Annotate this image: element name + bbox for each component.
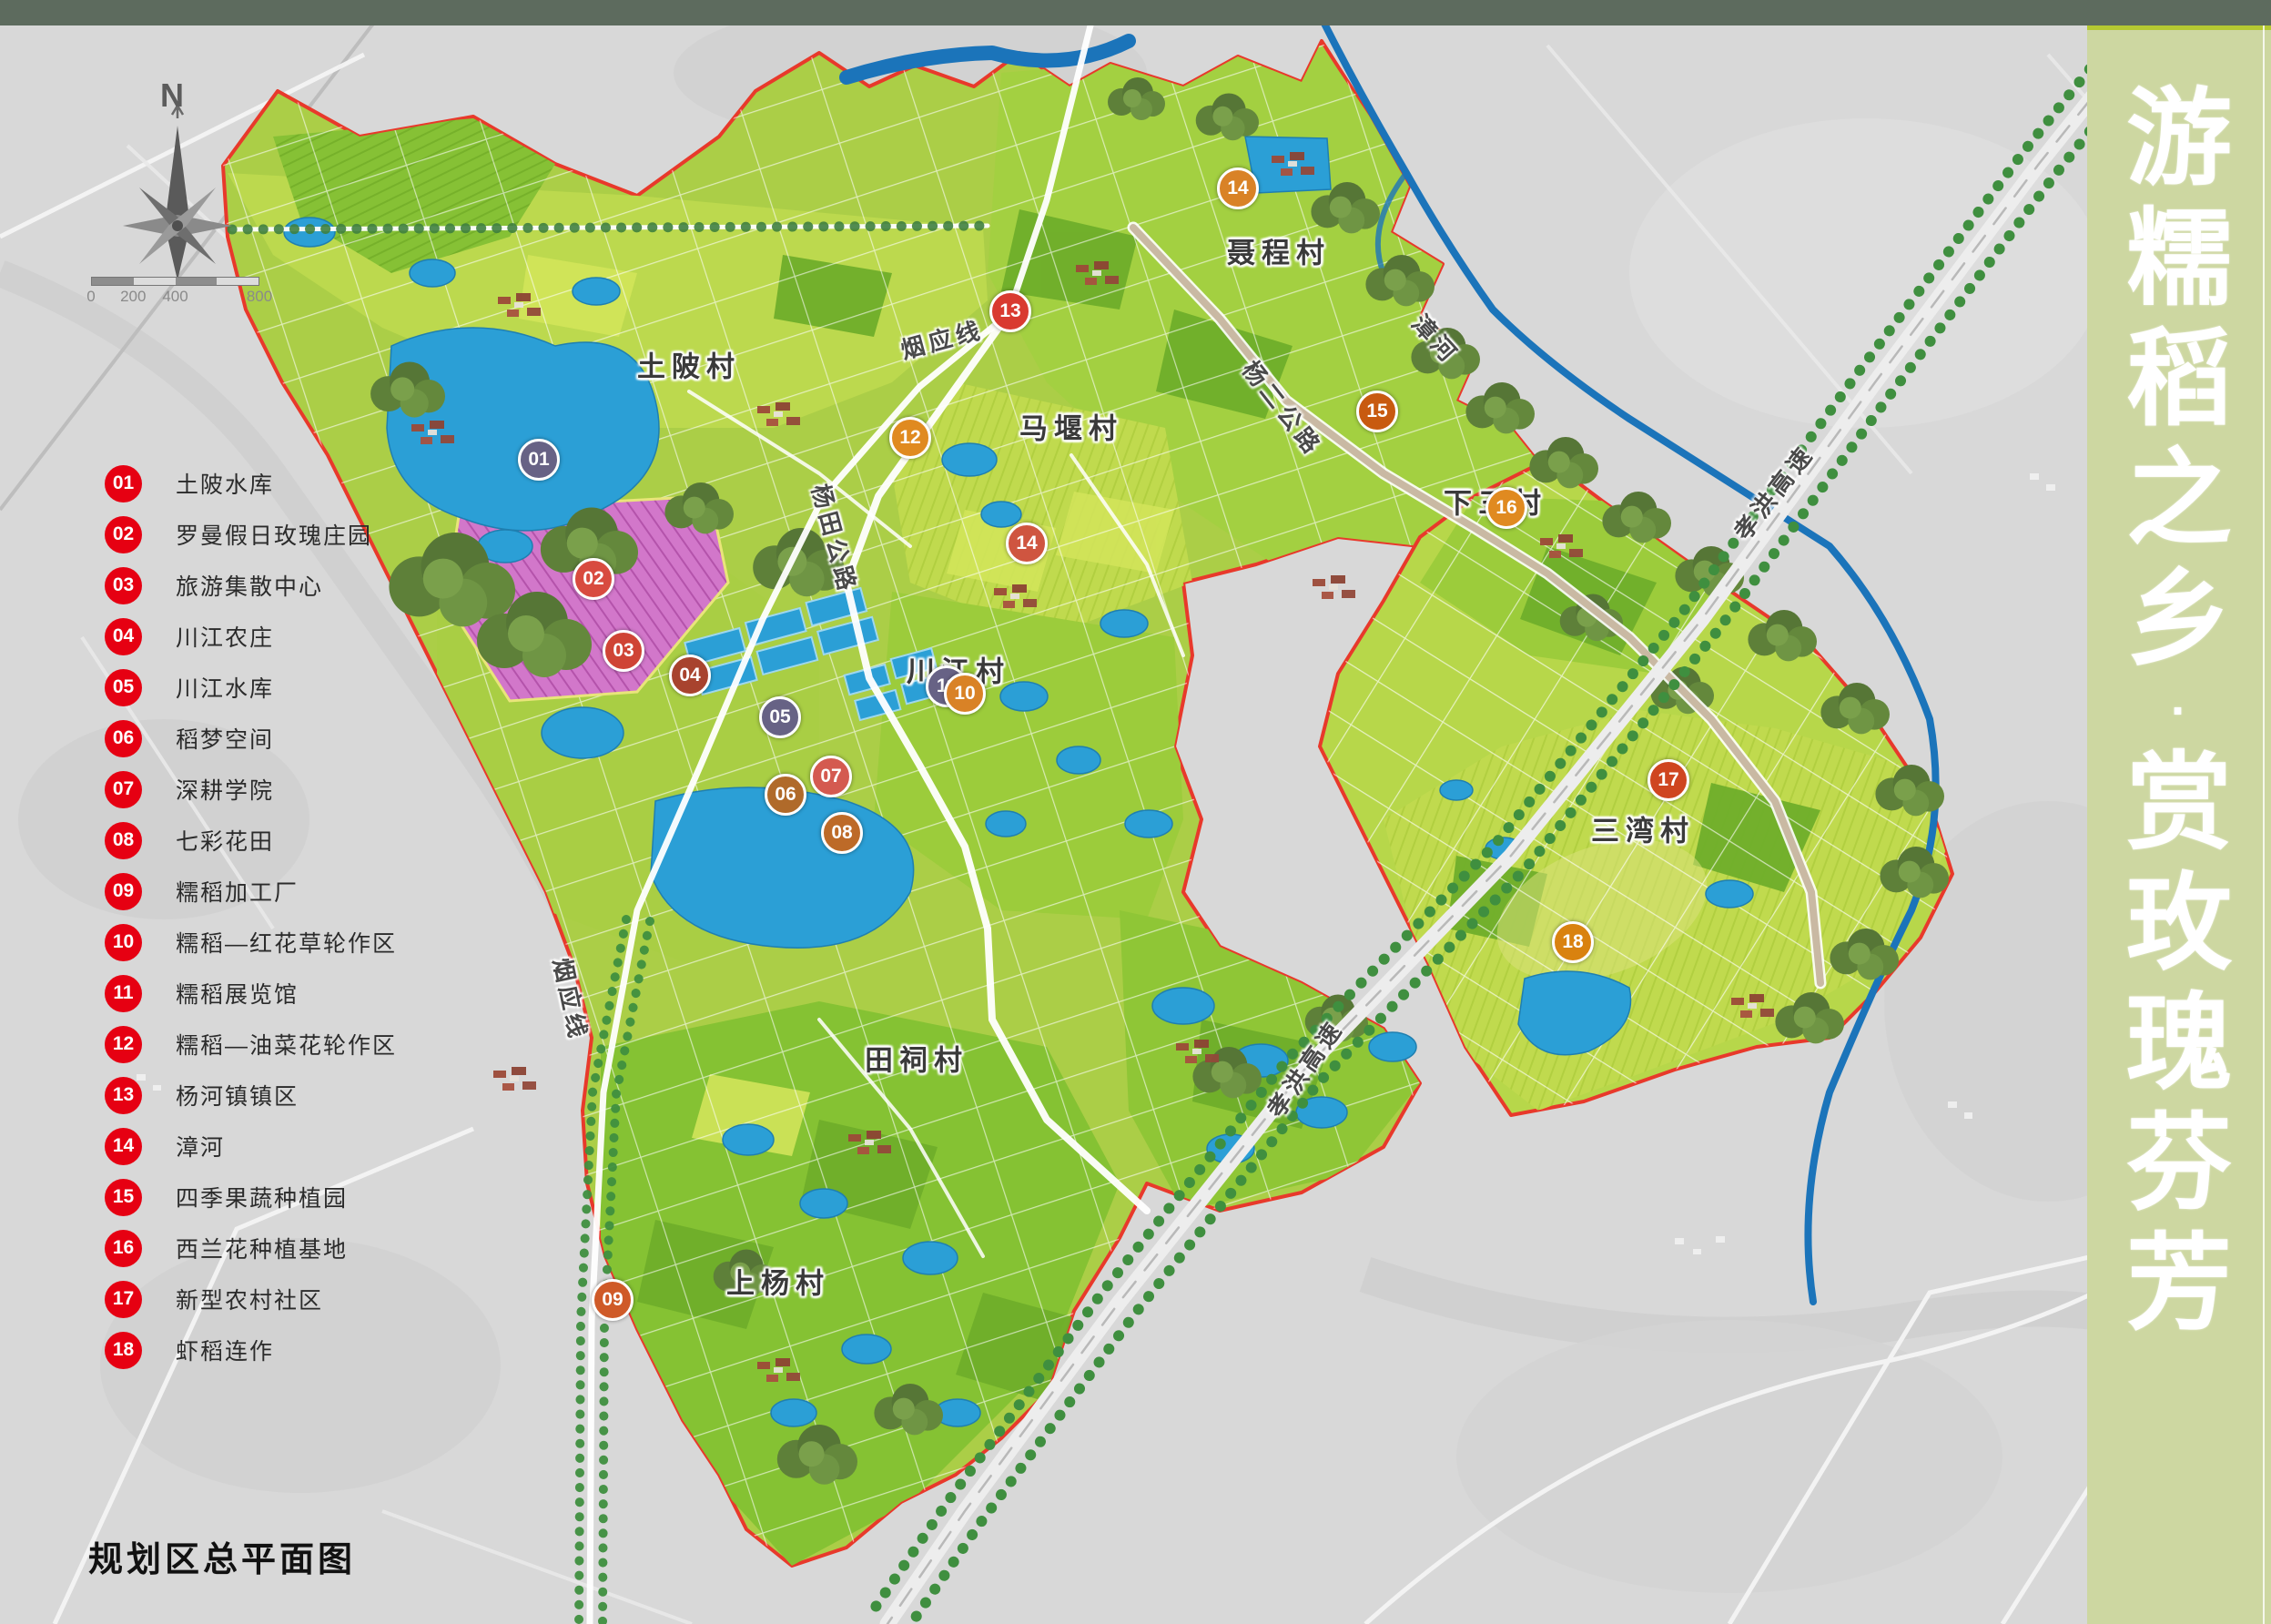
legend-item: 04川江农庄 [105, 611, 397, 662]
vertical-title: 游糯稻之乡·赏玫瑰芬芳 [2087, 78, 2271, 1344]
legend-number-badge: 08 [105, 822, 142, 859]
scale-segment [92, 278, 134, 285]
legend-label: 川江水库 [176, 671, 274, 704]
vertical-title-char: 瑰 [2126, 983, 2232, 1103]
legend-number-badge: 01 [105, 465, 142, 502]
legend-item: 05川江水库 [105, 662, 397, 713]
legend-number-badge: 13 [105, 1077, 142, 1114]
legend-number-badge: 03 [105, 567, 142, 604]
scale-bar: 0200400800 [91, 277, 259, 306]
legend-label: 四季果蔬种植园 [176, 1181, 348, 1213]
vertical-title-char: 芬 [2126, 1103, 2232, 1223]
scale-segment [217, 278, 259, 285]
legend-label: 稻梦空间 [176, 722, 274, 755]
legend-label: 糯稻加工厂 [176, 875, 299, 908]
vertical-title-char: 之 [2126, 439, 2232, 559]
top-bar [0, 0, 2271, 25]
legend-number-badge: 09 [105, 873, 142, 910]
sidebar-edge-line [2263, 25, 2265, 1624]
legend-number-badge: 16 [105, 1230, 142, 1267]
legend-label: 杨河镇镇区 [176, 1079, 299, 1111]
legend-label: 糯稻展览馆 [176, 977, 299, 1010]
legend: 01土陂水库02罗曼假日玫瑰庄园03旅游集散中心04川江农庄05川江水库06稻梦… [105, 458, 397, 1375]
legend-item: 01土陂水库 [105, 458, 397, 509]
legend-item: 16西兰花种植基地 [105, 1223, 397, 1274]
legend-item: 18虾稻连作 [105, 1325, 397, 1375]
vertical-title-char: 稻 [2126, 319, 2232, 439]
legend-number-badge: 10 [105, 924, 142, 961]
legend-item: 14漳河 [105, 1121, 397, 1172]
vertical-title-char: 游 [2126, 78, 2232, 198]
tree-row-north [232, 226, 988, 229]
legend-label: 糯稻—红花草轮作区 [176, 926, 397, 959]
legend-number-badge: 04 [105, 618, 142, 655]
vertical-title-char: · [2171, 679, 2187, 743]
scale-ticks: 0200400800 [91, 288, 259, 306]
legend-item: 10糯稻—红花草轮作区 [105, 917, 397, 968]
planning-map-page: 游糯稻之乡·赏玫瑰芬芳 N 0200400800 01土陂水库02罗曼假日玫瑰庄… [0, 0, 2271, 1624]
vertical-title-char: 乡 [2126, 559, 2232, 679]
legend-item: 13杨河镇镇区 [105, 1070, 397, 1121]
legend-number-badge: 14 [105, 1128, 142, 1165]
legend-item: 09糯稻加工厂 [105, 866, 397, 917]
scale-tick-label: 0 [86, 288, 95, 306]
legend-item: 17新型农村社区 [105, 1274, 397, 1325]
legend-number-badge: 11 [105, 975, 142, 1012]
legend-label: 新型农村社区 [176, 1283, 323, 1315]
legend-label: 漳河 [176, 1130, 225, 1162]
legend-item: 11糯稻展览馆 [105, 968, 397, 1019]
legend-label: 糯稻—油菜花轮作区 [176, 1028, 397, 1061]
legend-number-badge: 17 [105, 1281, 142, 1318]
legend-number-badge: 07 [105, 771, 142, 808]
scale-segment [176, 278, 218, 285]
legend-item: 07深耕学院 [105, 764, 397, 815]
legend-label: 深耕学院 [176, 773, 274, 806]
scale-segment [134, 278, 176, 285]
vertical-title-char: 芳 [2126, 1223, 2232, 1344]
vertical-title-char: 玫 [2126, 863, 2232, 983]
vertical-title-char: 糯 [2126, 198, 2232, 319]
page-title: 规划区总平面图 [88, 1531, 356, 1581]
legend-label: 川江农庄 [176, 620, 274, 653]
legend-item: 03旅游集散中心 [105, 560, 397, 611]
legend-number-badge: 12 [105, 1026, 142, 1063]
sidebar-accent-line [2087, 25, 2271, 30]
legend-item: 02罗曼假日玫瑰庄园 [105, 509, 397, 560]
scale-tick-label: 200 [120, 288, 146, 306]
legend-label: 七彩花田 [176, 824, 274, 857]
legend-label: 虾稻连作 [176, 1334, 274, 1366]
legend-label: 罗曼假日玫瑰庄园 [176, 518, 372, 551]
scale-bar-segments [91, 277, 259, 286]
north-label: N [160, 76, 184, 115]
legend-item: 12糯稻—油菜花轮作区 [105, 1019, 397, 1070]
legend-number-badge: 05 [105, 669, 142, 706]
legend-number-badge: 06 [105, 720, 142, 757]
scale-tick-label: 800 [247, 288, 272, 306]
legend-label: 土陂水库 [176, 467, 274, 500]
legend-item: 08七彩花田 [105, 815, 397, 866]
legend-label: 旅游集散中心 [176, 569, 323, 602]
legend-number-badge: 15 [105, 1179, 142, 1216]
legend-number-badge: 02 [105, 516, 142, 553]
scale-tick-label: 400 [162, 288, 188, 306]
legend-item: 06稻梦空间 [105, 713, 397, 764]
vertical-title-char: 赏 [2126, 743, 2232, 863]
legend-item: 15四季果蔬种植园 [105, 1172, 397, 1223]
title-sidebar: 游糯稻之乡·赏玫瑰芬芳 [2087, 25, 2271, 1624]
legend-label: 西兰花种植基地 [176, 1232, 348, 1264]
legend-number-badge: 18 [105, 1332, 142, 1369]
